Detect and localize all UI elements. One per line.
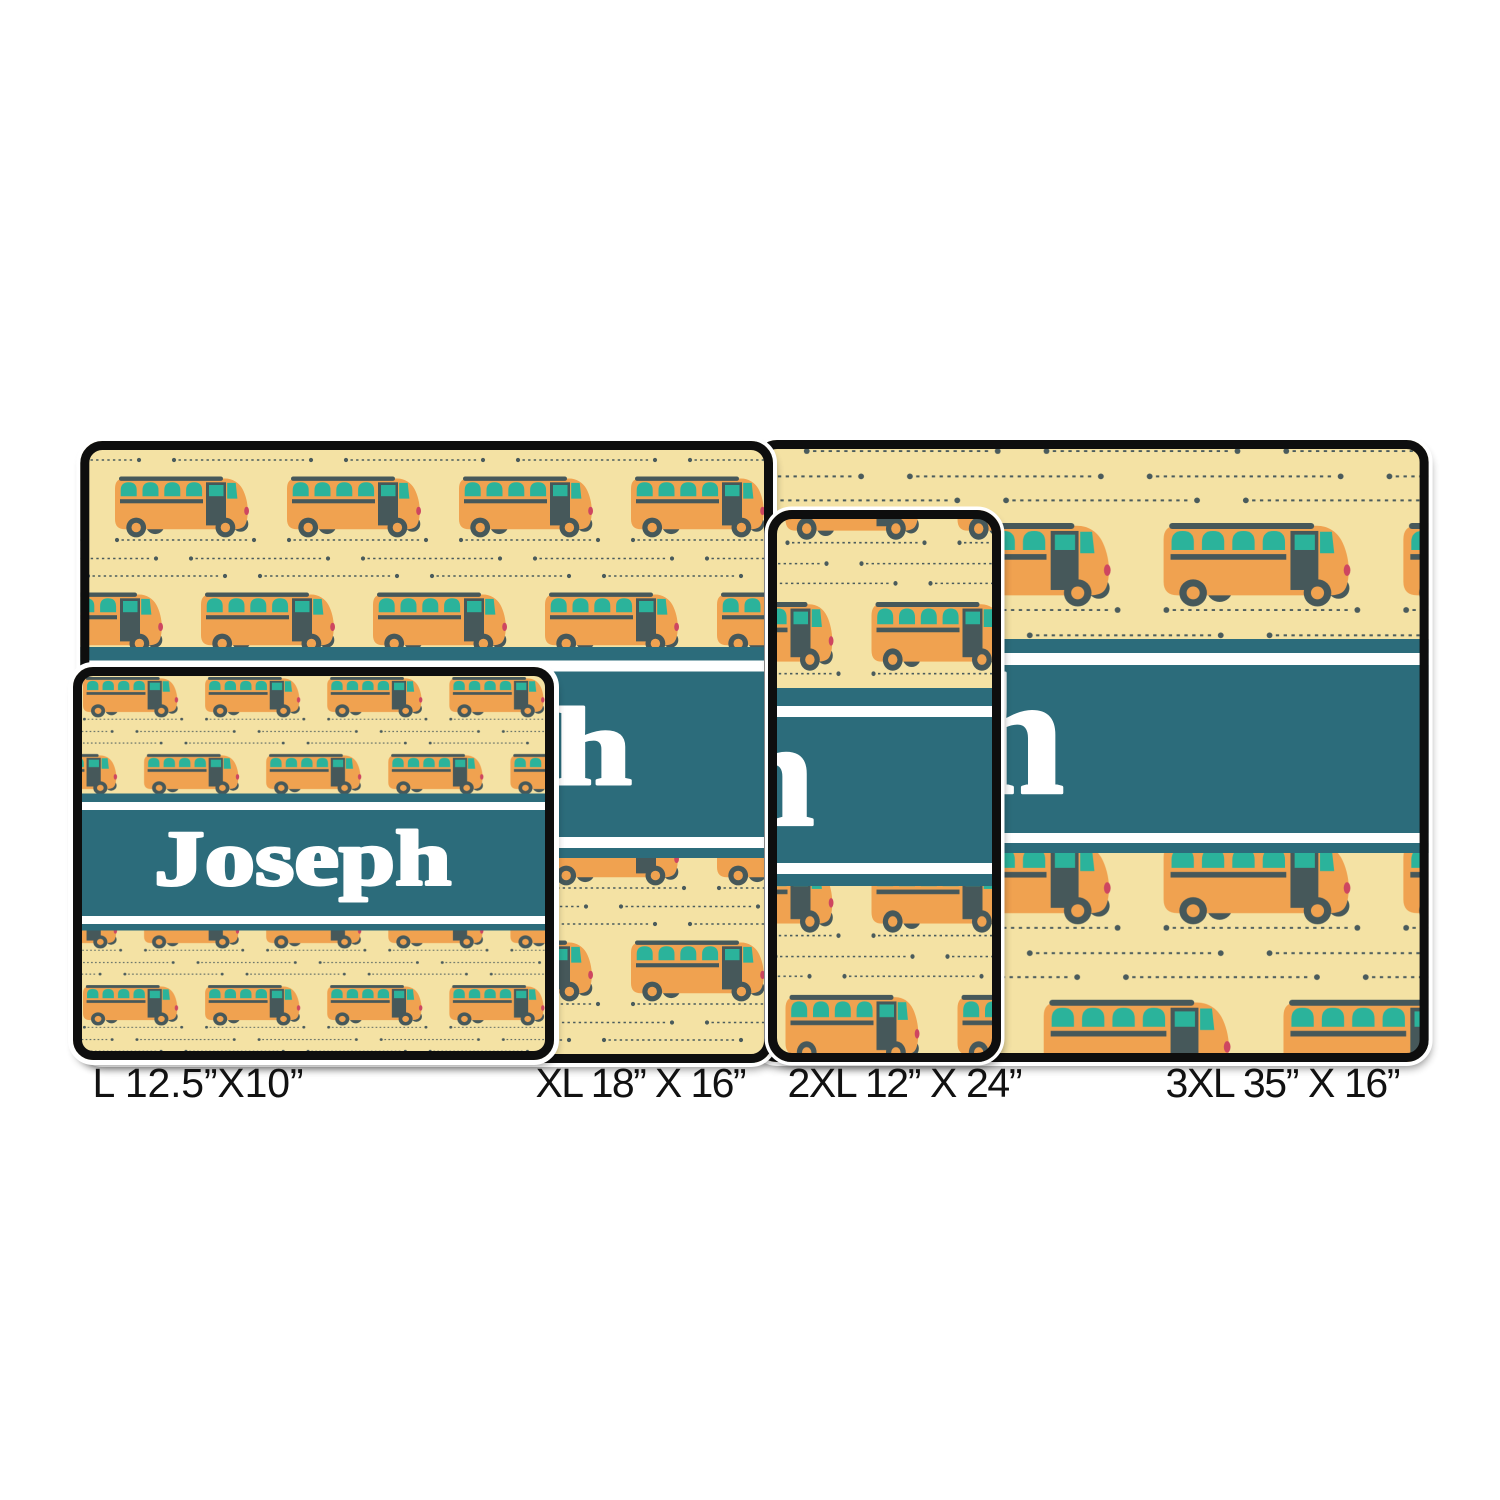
svg-text:3XL 35” X 16”: 3XL 35” X 16” <box>1166 1060 1401 1106</box>
svg-text:Joseph: Joseph <box>154 815 451 902</box>
svg-text:L 12.5”X10”: L 12.5”X10” <box>93 1060 304 1106</box>
svg-text:XL 18” X 16”: XL 18” X 16” <box>536 1060 747 1106</box>
svg-text:2XL 12” X 24”: 2XL 12” X 24” <box>788 1060 1023 1106</box>
